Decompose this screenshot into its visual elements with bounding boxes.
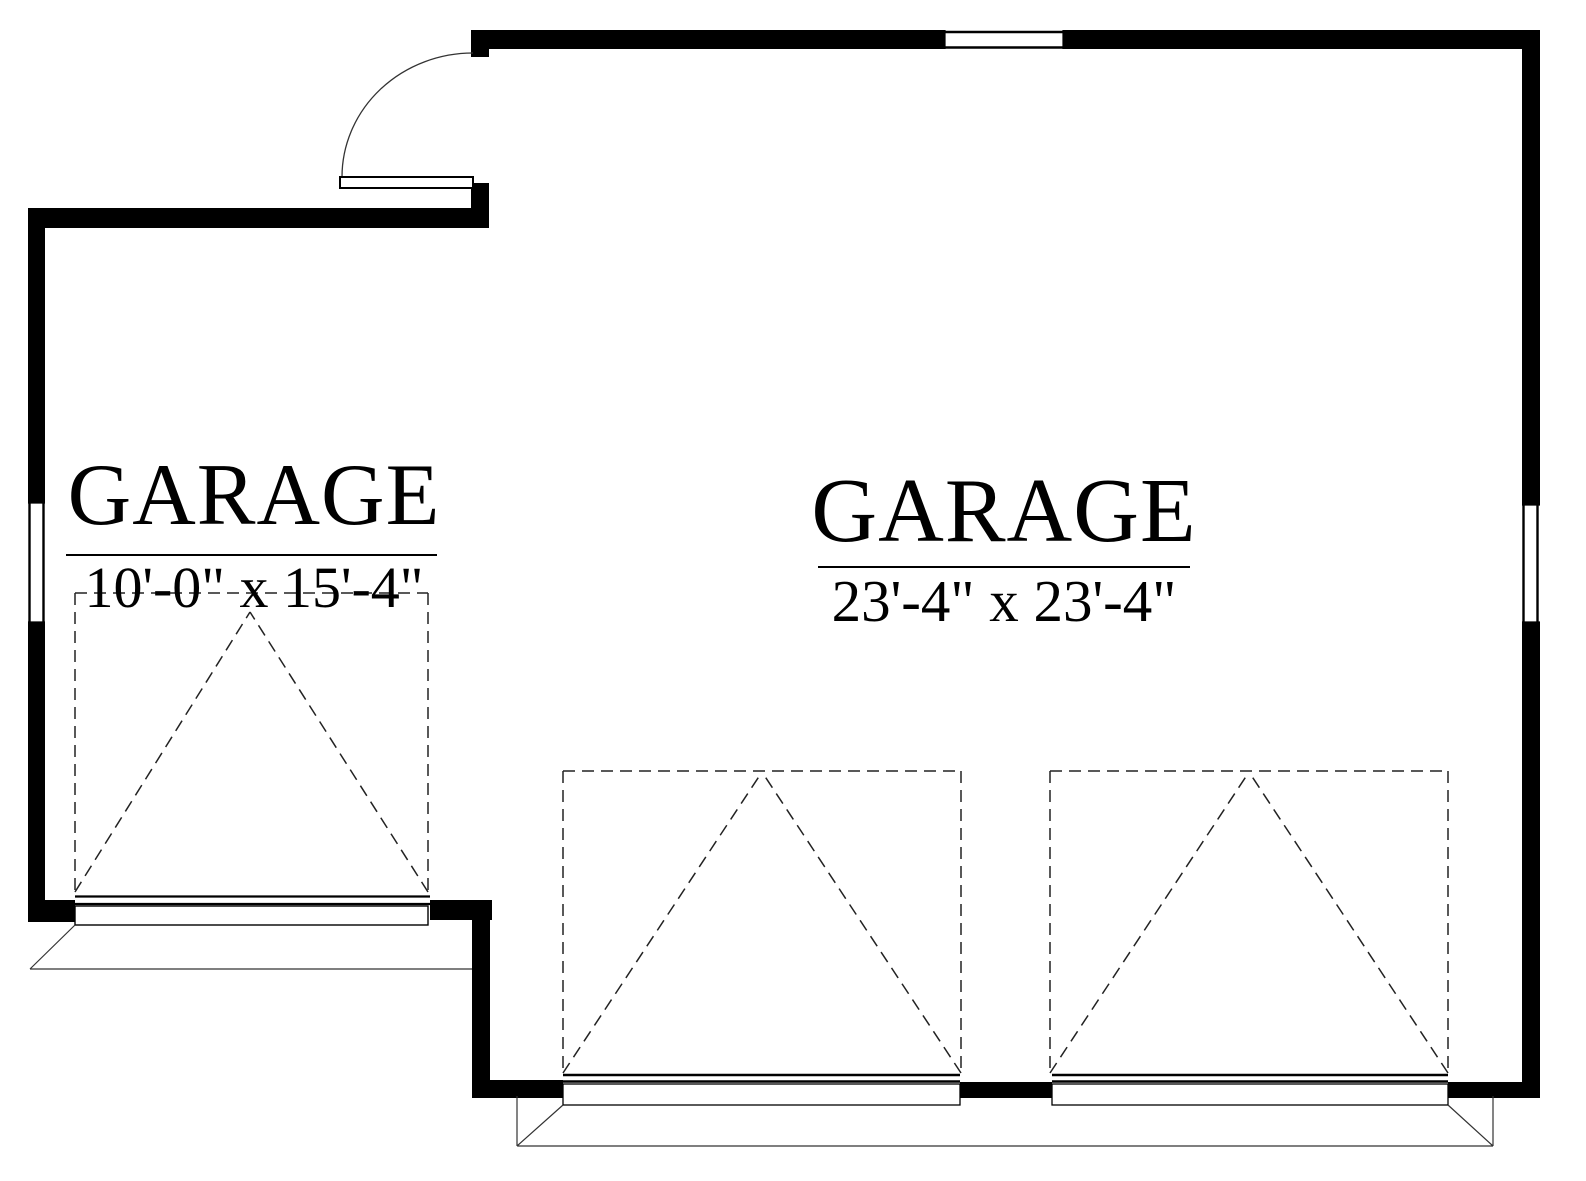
room-dimensions-large-garage: 23'-4" x 23'-4" bbox=[784, 572, 1224, 631]
wall-top-left-segment bbox=[471, 30, 945, 49]
door-swing-symbols bbox=[75, 593, 1448, 1073]
small-door-slab bbox=[75, 906, 428, 925]
small-door-apron bbox=[30, 925, 472, 969]
left-door-swing-symbol bbox=[563, 771, 961, 1073]
wall-small-door-left-jamb bbox=[28, 900, 75, 922]
entry-door bbox=[340, 53, 473, 188]
wall-bottom-right-piece bbox=[1448, 1082, 1540, 1098]
wall-center-pier bbox=[960, 1082, 1052, 1098]
door-swing-arc bbox=[342, 53, 473, 177]
room-label-large-garage: GARAGE bbox=[784, 465, 1224, 556]
wall-small-garage-top bbox=[28, 208, 489, 228]
wall-front-step bbox=[472, 900, 490, 1098]
wall-top-end-stub bbox=[471, 30, 489, 57]
right-door-slab bbox=[1052, 1084, 1448, 1105]
window-right-wall bbox=[1522, 505, 1540, 622]
small-door-swing-symbol bbox=[75, 593, 428, 892]
right-door-swing-symbol bbox=[1050, 771, 1448, 1073]
left-door-slab bbox=[563, 1084, 960, 1105]
room-dimensions-small-garage: 10'-0" x 15'-4" bbox=[34, 559, 474, 617]
door-leaf bbox=[340, 177, 473, 188]
wall-bottom-left-piece bbox=[472, 1080, 563, 1098]
small-door-header-lines bbox=[75, 897, 430, 905]
floor-plan: GARAGE 10'-0" x 15'-4" GARAGE 23'-4" x 2… bbox=[0, 0, 1586, 1181]
window-top-wall bbox=[945, 30, 1063, 49]
wall-entry-door-jamb bbox=[471, 183, 489, 228]
room-label-small-garage: GARAGE bbox=[34, 452, 474, 540]
small-garage-door bbox=[30, 897, 472, 970]
wall-top-right-segment bbox=[1063, 30, 1540, 49]
wall-right-upper bbox=[1522, 30, 1540, 505]
right-door-header-lines bbox=[1052, 1075, 1448, 1082]
left-door-header-lines bbox=[563, 1075, 960, 1082]
wall-right-lower bbox=[1522, 622, 1540, 1097]
wall-left-lower bbox=[28, 622, 45, 922]
